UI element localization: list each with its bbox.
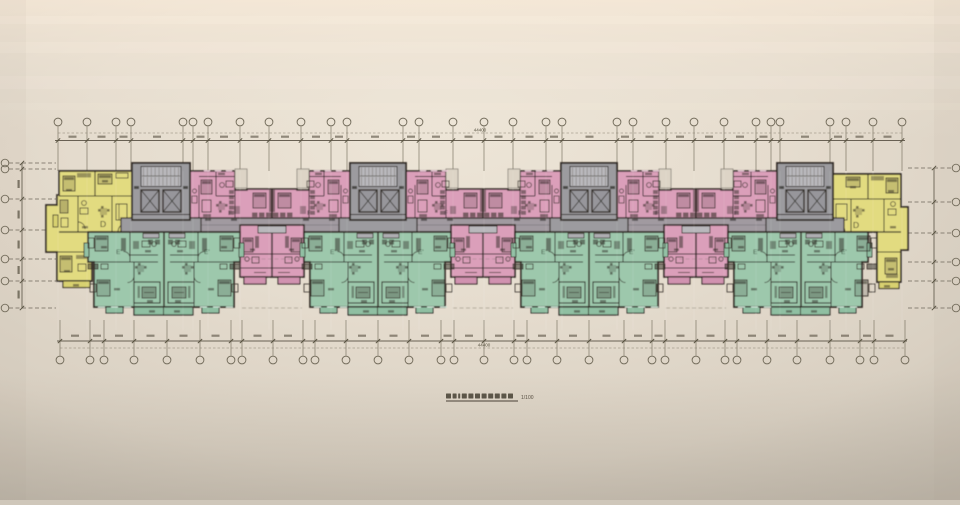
- svg-text:F: F: [444, 210, 448, 217]
- svg-text:D: D: [853, 220, 859, 230]
- svg-text:D: D: [100, 219, 106, 229]
- svg-text:44400: 44400: [478, 343, 491, 348]
- svg-text:E': E': [204, 249, 210, 256]
- svg-text:F: F: [734, 210, 738, 217]
- svg-text:F: F: [307, 210, 311, 217]
- svg-text:F: F: [518, 210, 522, 217]
- svg-text:44400: 44400: [474, 128, 487, 133]
- svg-text:F: F: [655, 210, 659, 217]
- svg-text:1/100: 1/100: [521, 395, 534, 401]
- svg-text:F: F: [228, 210, 232, 217]
- svg-text:E': E': [116, 249, 122, 256]
- svg-text:E': E': [629, 249, 635, 256]
